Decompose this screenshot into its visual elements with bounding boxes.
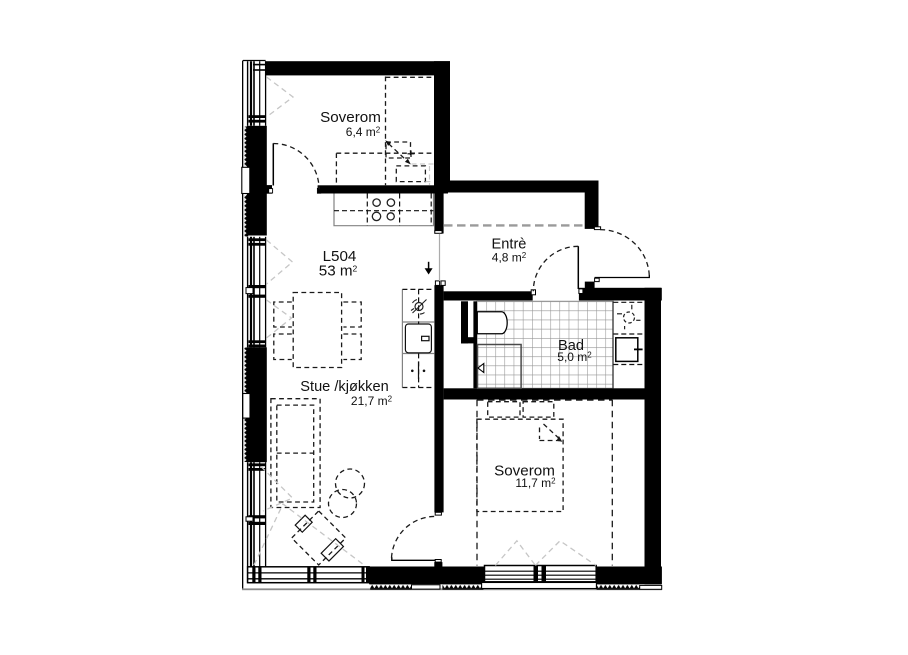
svg-text:4,8 m2: 4,8 m2 [492, 250, 527, 264]
svg-text:11,7 m2: 11,7 m2 [515, 476, 556, 490]
svg-text:6,4 m2: 6,4 m2 [346, 125, 381, 139]
svg-text:Soverom: Soverom [320, 109, 381, 126]
svg-text:5,0 m2: 5,0 m2 [557, 350, 592, 364]
svg-text:53 m2: 53 m2 [319, 262, 358, 279]
svg-text:Stue /kjøkken: Stue /kjøkken [300, 379, 388, 395]
svg-text:21,7 m2: 21,7 m2 [351, 394, 393, 408]
